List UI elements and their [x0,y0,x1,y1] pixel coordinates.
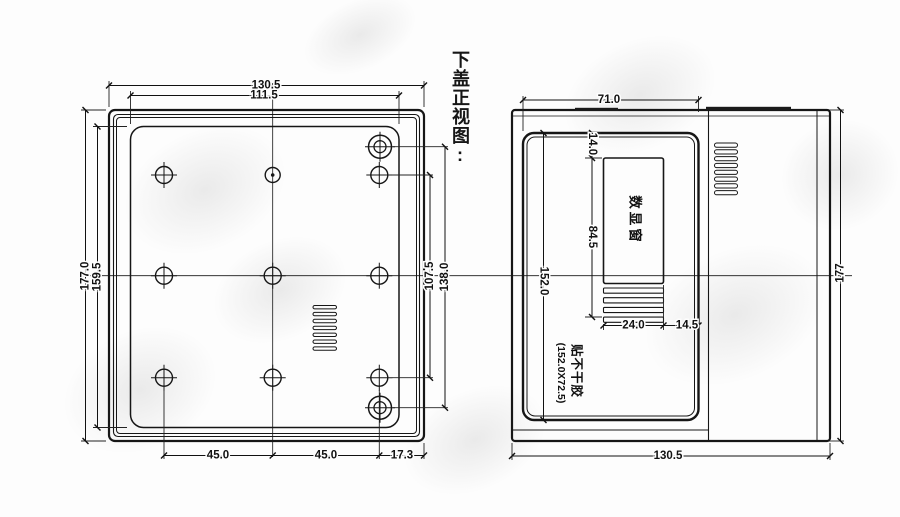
screw-hole [260,365,286,391]
dim-overall-width: 130.5 [654,450,683,462]
dim-outer-height: 177.0 [80,262,92,291]
screw-hole [151,263,177,289]
screw-hole [366,162,392,188]
corner-screw-boss [365,393,395,423]
lid-clip-mark [706,107,791,111]
screw-hole [151,162,177,188]
cad-drawing: 130.5 111.5 177.0 159.5 107.5 138.0 45.0… [0,0,900,500]
sticker-panel-inner [527,137,695,416]
dim-edge-offset: 17.3 [391,450,413,462]
dim-hole-pitch-right: 45.0 [315,450,337,462]
dim-panel-width: 71.0 [598,94,620,106]
vent-slots-left [313,306,337,351]
screw-hole [151,365,177,391]
window-vent-slots [604,288,664,322]
side-vent-slots [715,143,738,195]
display-window-label: 数显窗 [627,195,643,245]
dim-window-top-offset: 14.0 [586,133,598,155]
dim-hole-pitch-left: 45.0 [207,450,229,462]
screw-hole [260,263,286,289]
drawing-sheet: 下盖正视图: [0,0,900,500]
dim-inner-height: 159.5 [92,262,104,291]
screw-hole [366,263,392,289]
dim-window-span: 84.5 [586,226,598,249]
left-view [82,83,852,457]
dim-corner-screw-span: 138.0 [439,263,451,292]
dim-overall-height: 177 [835,263,847,282]
screw-hole [366,365,392,391]
corner-screw-boss [365,132,395,162]
right-view-dimensions: 71.0 14.0 84.5 152.0 24.0 14.5 130.5 177… [512,94,847,462]
dim-hole-span-vertical: 107.5 [424,261,436,290]
dim-inner-width: 111.5 [250,90,278,102]
lid-clip-mark [575,108,618,111]
sticker-note-line2: (152.0X72.5) [555,343,567,404]
dim-window-right-gap: 14.5 [676,320,699,332]
dim-window-width: 24.0 [622,320,644,332]
sticker-note-line1: 贴不干胶 [570,344,585,398]
dim-panel-height: 152.0 [537,267,549,296]
